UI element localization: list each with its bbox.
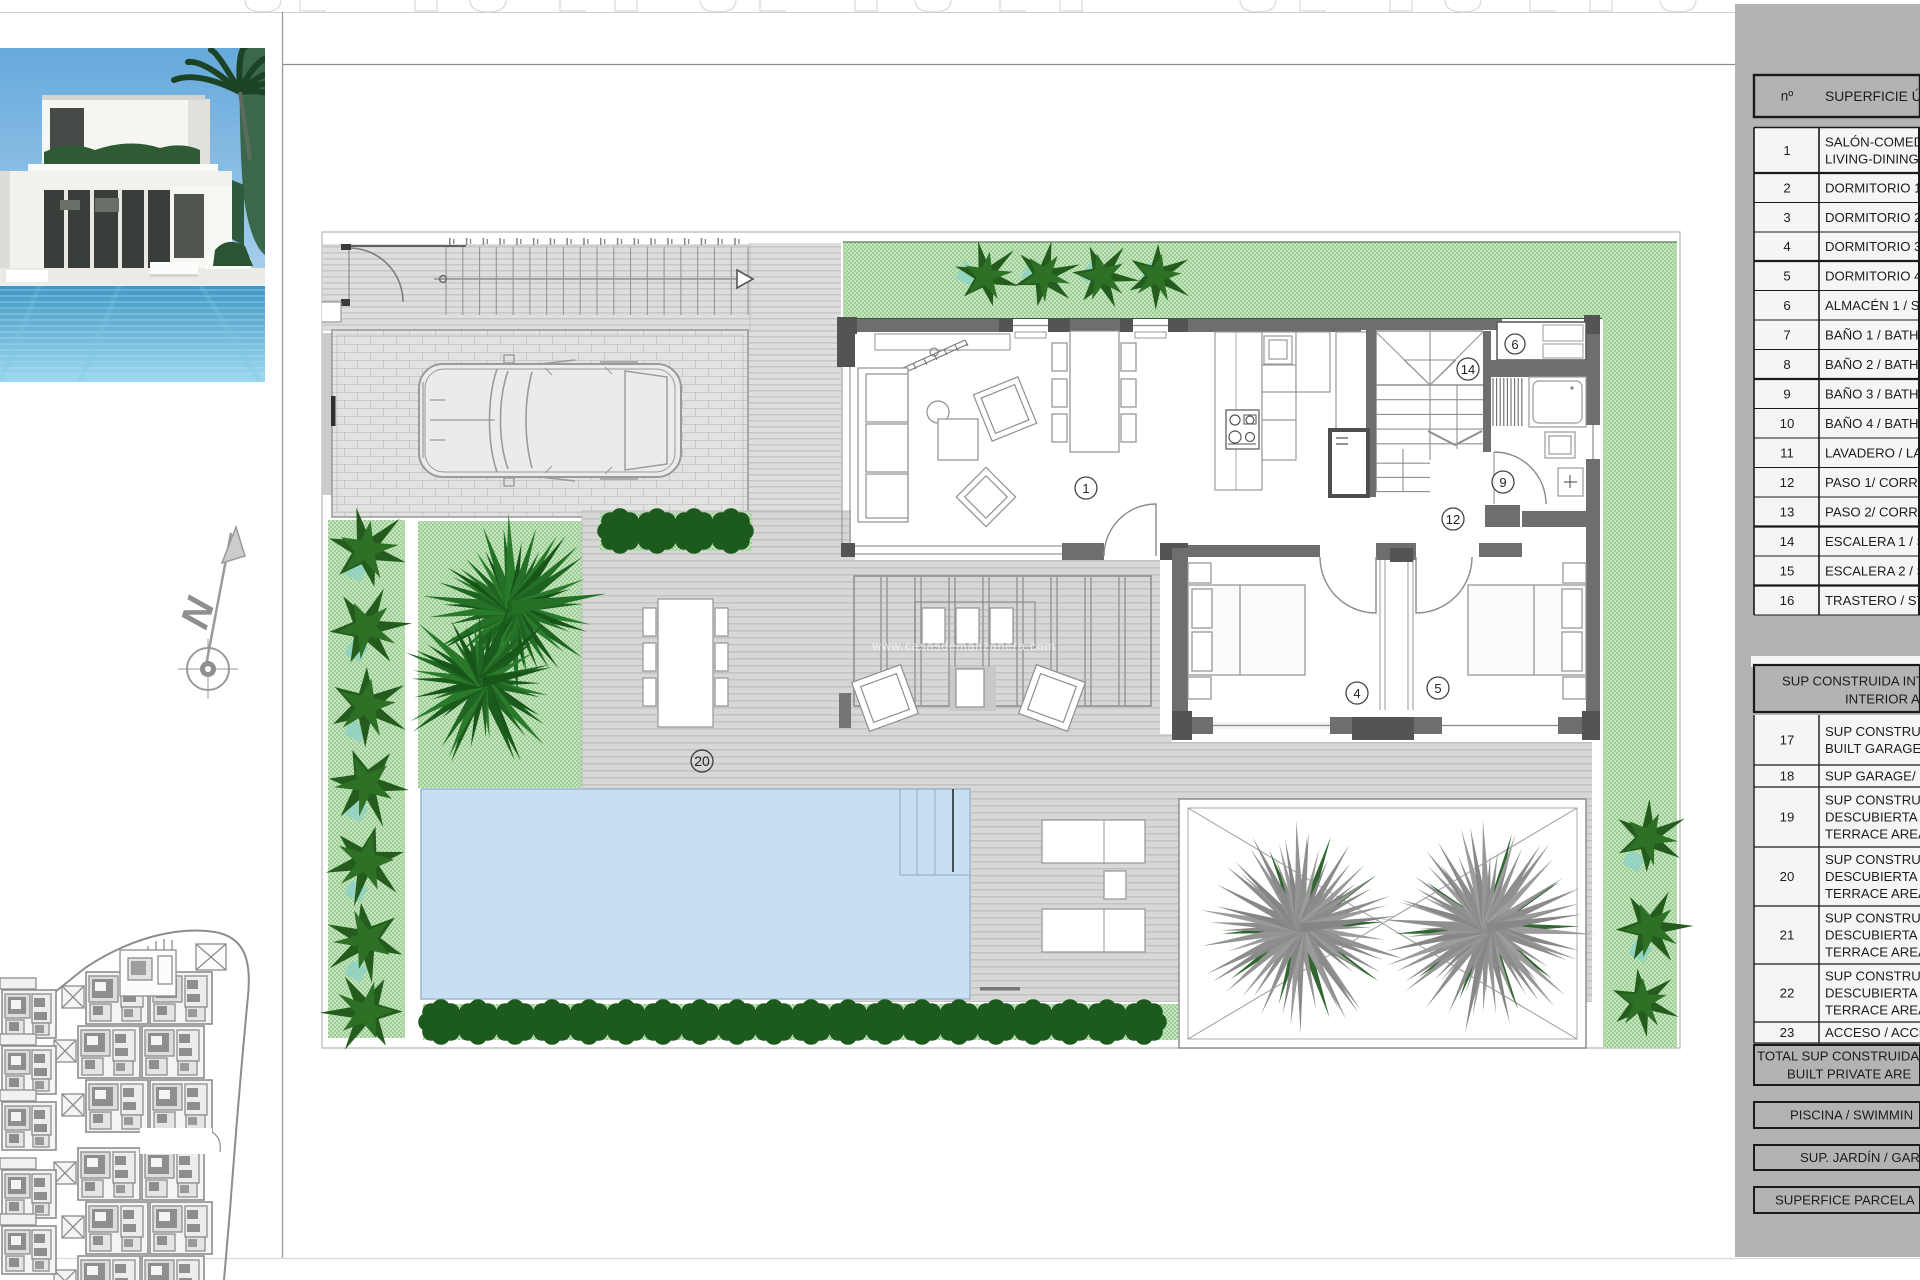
svg-text:SUPERFICIE ÚTIL / US: SUPERFICIE ÚTIL / US: [1825, 88, 1920, 104]
svg-text:4: 4: [1783, 239, 1790, 254]
svg-text:12: 12: [1446, 512, 1460, 527]
svg-text:PASO 1/ CORRIDO: PASO 1/ CORRIDO: [1825, 475, 1920, 490]
svg-text:SUP CONSTRUIDA: SUP CONSTRUIDA: [1825, 852, 1920, 867]
svg-text:9: 9: [1783, 386, 1790, 401]
svg-text:TERRACE AREA 2: TERRACE AREA 2: [1825, 886, 1920, 901]
svg-text:1: 1: [1783, 143, 1790, 158]
svg-text:19: 19: [1780, 810, 1795, 825]
svg-text:DORMITORIO 4 / BE: DORMITORIO 4 / BE: [1825, 268, 1920, 283]
svg-text:PISCINA / SWIMMIN: PISCINA / SWIMMIN: [1790, 1108, 1913, 1123]
svg-text:8: 8: [1783, 357, 1790, 372]
svg-text:4: 4: [1353, 686, 1360, 701]
svg-text:17: 17: [1780, 733, 1795, 748]
svg-text:23: 23: [1780, 1025, 1795, 1040]
svg-text:SUPERFICE PARCELA: SUPERFICE PARCELA: [1775, 1193, 1915, 1208]
svg-text:5: 5: [1434, 681, 1441, 696]
svg-text:2: 2: [1783, 180, 1790, 195]
svg-text:SUP CONSTRUIDA: SUP CONSTRUIDA: [1825, 793, 1920, 808]
svg-text:3: 3: [1783, 210, 1790, 225]
svg-text:ESCALERA 2 / STAI: ESCALERA 2 / STAI: [1825, 563, 1920, 578]
svg-text:13: 13: [1780, 504, 1795, 519]
svg-text:10: 10: [1780, 416, 1795, 431]
svg-text:BAÑO 3 / BATHRO: BAÑO 3 / BATHRO: [1825, 386, 1920, 401]
svg-text:SUP CONSTRUIDA: SUP CONSTRUIDA: [1825, 724, 1920, 739]
svg-text:6: 6: [1783, 298, 1790, 313]
svg-text:DORMITORIO 3 / BE: DORMITORIO 3 / BE: [1825, 239, 1920, 254]
svg-text:DESCUBIERTA 1 /: DESCUBIERTA 1 /: [1825, 810, 1920, 825]
svg-text:nº: nº: [1781, 89, 1794, 104]
svg-text:DESCUBIERTA 4 /: DESCUBIERTA 4 /: [1825, 986, 1920, 1001]
svg-text:BAÑO 2 / BATHRO: BAÑO 2 / BATHRO: [1825, 357, 1920, 372]
svg-text:9: 9: [1499, 475, 1506, 490]
svg-text:DESCUBIERTA 2 /: DESCUBIERTA 2 /: [1825, 869, 1920, 884]
svg-text:20: 20: [1780, 869, 1795, 884]
svg-text:6: 6: [1511, 337, 1518, 352]
svg-text:LAVADERO / LAUN: LAVADERO / LAUN: [1825, 445, 1920, 460]
svg-text:TERRACE AREA 4: TERRACE AREA 4: [1825, 1003, 1920, 1018]
svg-text:18: 18: [1780, 769, 1795, 784]
svg-text:12: 12: [1780, 475, 1795, 490]
svg-text:PASO 2/ CORRIDO: PASO 2/ CORRIDO: [1825, 504, 1920, 519]
svg-text:INTERIOR AREA: INTERIOR AREA: [1845, 692, 1920, 707]
svg-text:DORMITORIO 1 / BE: DORMITORIO 1 / BE: [1825, 180, 1920, 195]
svg-text:BAÑO 1 / BATHRO: BAÑO 1 / BATHRO: [1825, 327, 1920, 342]
svg-text:21: 21: [1780, 928, 1795, 943]
svg-text:LIVING-DINING RO: LIVING-DINING RO: [1825, 151, 1920, 166]
svg-text:1: 1: [1082, 481, 1089, 496]
svg-text:SUP GARAGE/ GA: SUP GARAGE/ GA: [1825, 769, 1920, 784]
svg-text:16: 16: [1780, 593, 1795, 608]
svg-text:DESCUBIERTA 3 /: DESCUBIERTA 3 /: [1825, 928, 1920, 943]
svg-text:BUILT PRIVATE ARE: BUILT PRIVATE ARE: [1787, 1067, 1912, 1082]
svg-text:www.casasdemanzanera.com: www.casasdemanzanera.com: [871, 639, 1055, 653]
svg-text:BAÑO 4 / BATHRO: BAÑO 4 / BATHRO: [1825, 416, 1920, 431]
svg-text:ESCALERA 1 / STAI: ESCALERA 1 / STAI: [1825, 534, 1920, 549]
svg-text:TERRACE AREA 1: TERRACE AREA 1: [1825, 827, 1920, 842]
svg-text:20: 20: [694, 753, 710, 769]
svg-text:22: 22: [1780, 986, 1795, 1001]
svg-text:15: 15: [1780, 563, 1795, 578]
svg-text:TOTAL SUP CONSTRUIDA P: TOTAL SUP CONSTRUIDA P: [1757, 1049, 1920, 1064]
svg-text:SUP CONSTRUIDA INTERIO: SUP CONSTRUIDA INTERIO: [1782, 674, 1920, 689]
svg-text:TERRACE AREA 3: TERRACE AREA 3: [1825, 945, 1920, 960]
svg-text:SUP. JARDÍN / GARD: SUP. JARDÍN / GARD: [1800, 1150, 1920, 1165]
svg-text:11: 11: [1780, 445, 1794, 460]
svg-text:TRASTERO / STOR: TRASTERO / STOR: [1825, 593, 1920, 608]
svg-text:SALÓN-COMEDOR /: SALÓN-COMEDOR /: [1825, 134, 1920, 149]
svg-text:ALMACÉN 1 / STOR: ALMACÉN 1 / STOR: [1825, 298, 1920, 313]
svg-text:14: 14: [1461, 362, 1475, 377]
svg-text:5: 5: [1783, 268, 1790, 283]
svg-text:BUILT GARAGE AR: BUILT GARAGE AR: [1825, 741, 1920, 756]
svg-text:ACCESO / ACCESS: ACCESO / ACCESS: [1825, 1025, 1920, 1040]
svg-text:14: 14: [1780, 534, 1795, 549]
svg-text:DORMITORIO 2 / BE: DORMITORIO 2 / BE: [1825, 210, 1920, 225]
svg-text:SUP CONSTRUIDA: SUP CONSTRUIDA: [1825, 911, 1920, 926]
svg-text:7: 7: [1783, 327, 1790, 342]
svg-text:SUP CONSTRUIDA: SUP CONSTRUIDA: [1825, 969, 1920, 984]
